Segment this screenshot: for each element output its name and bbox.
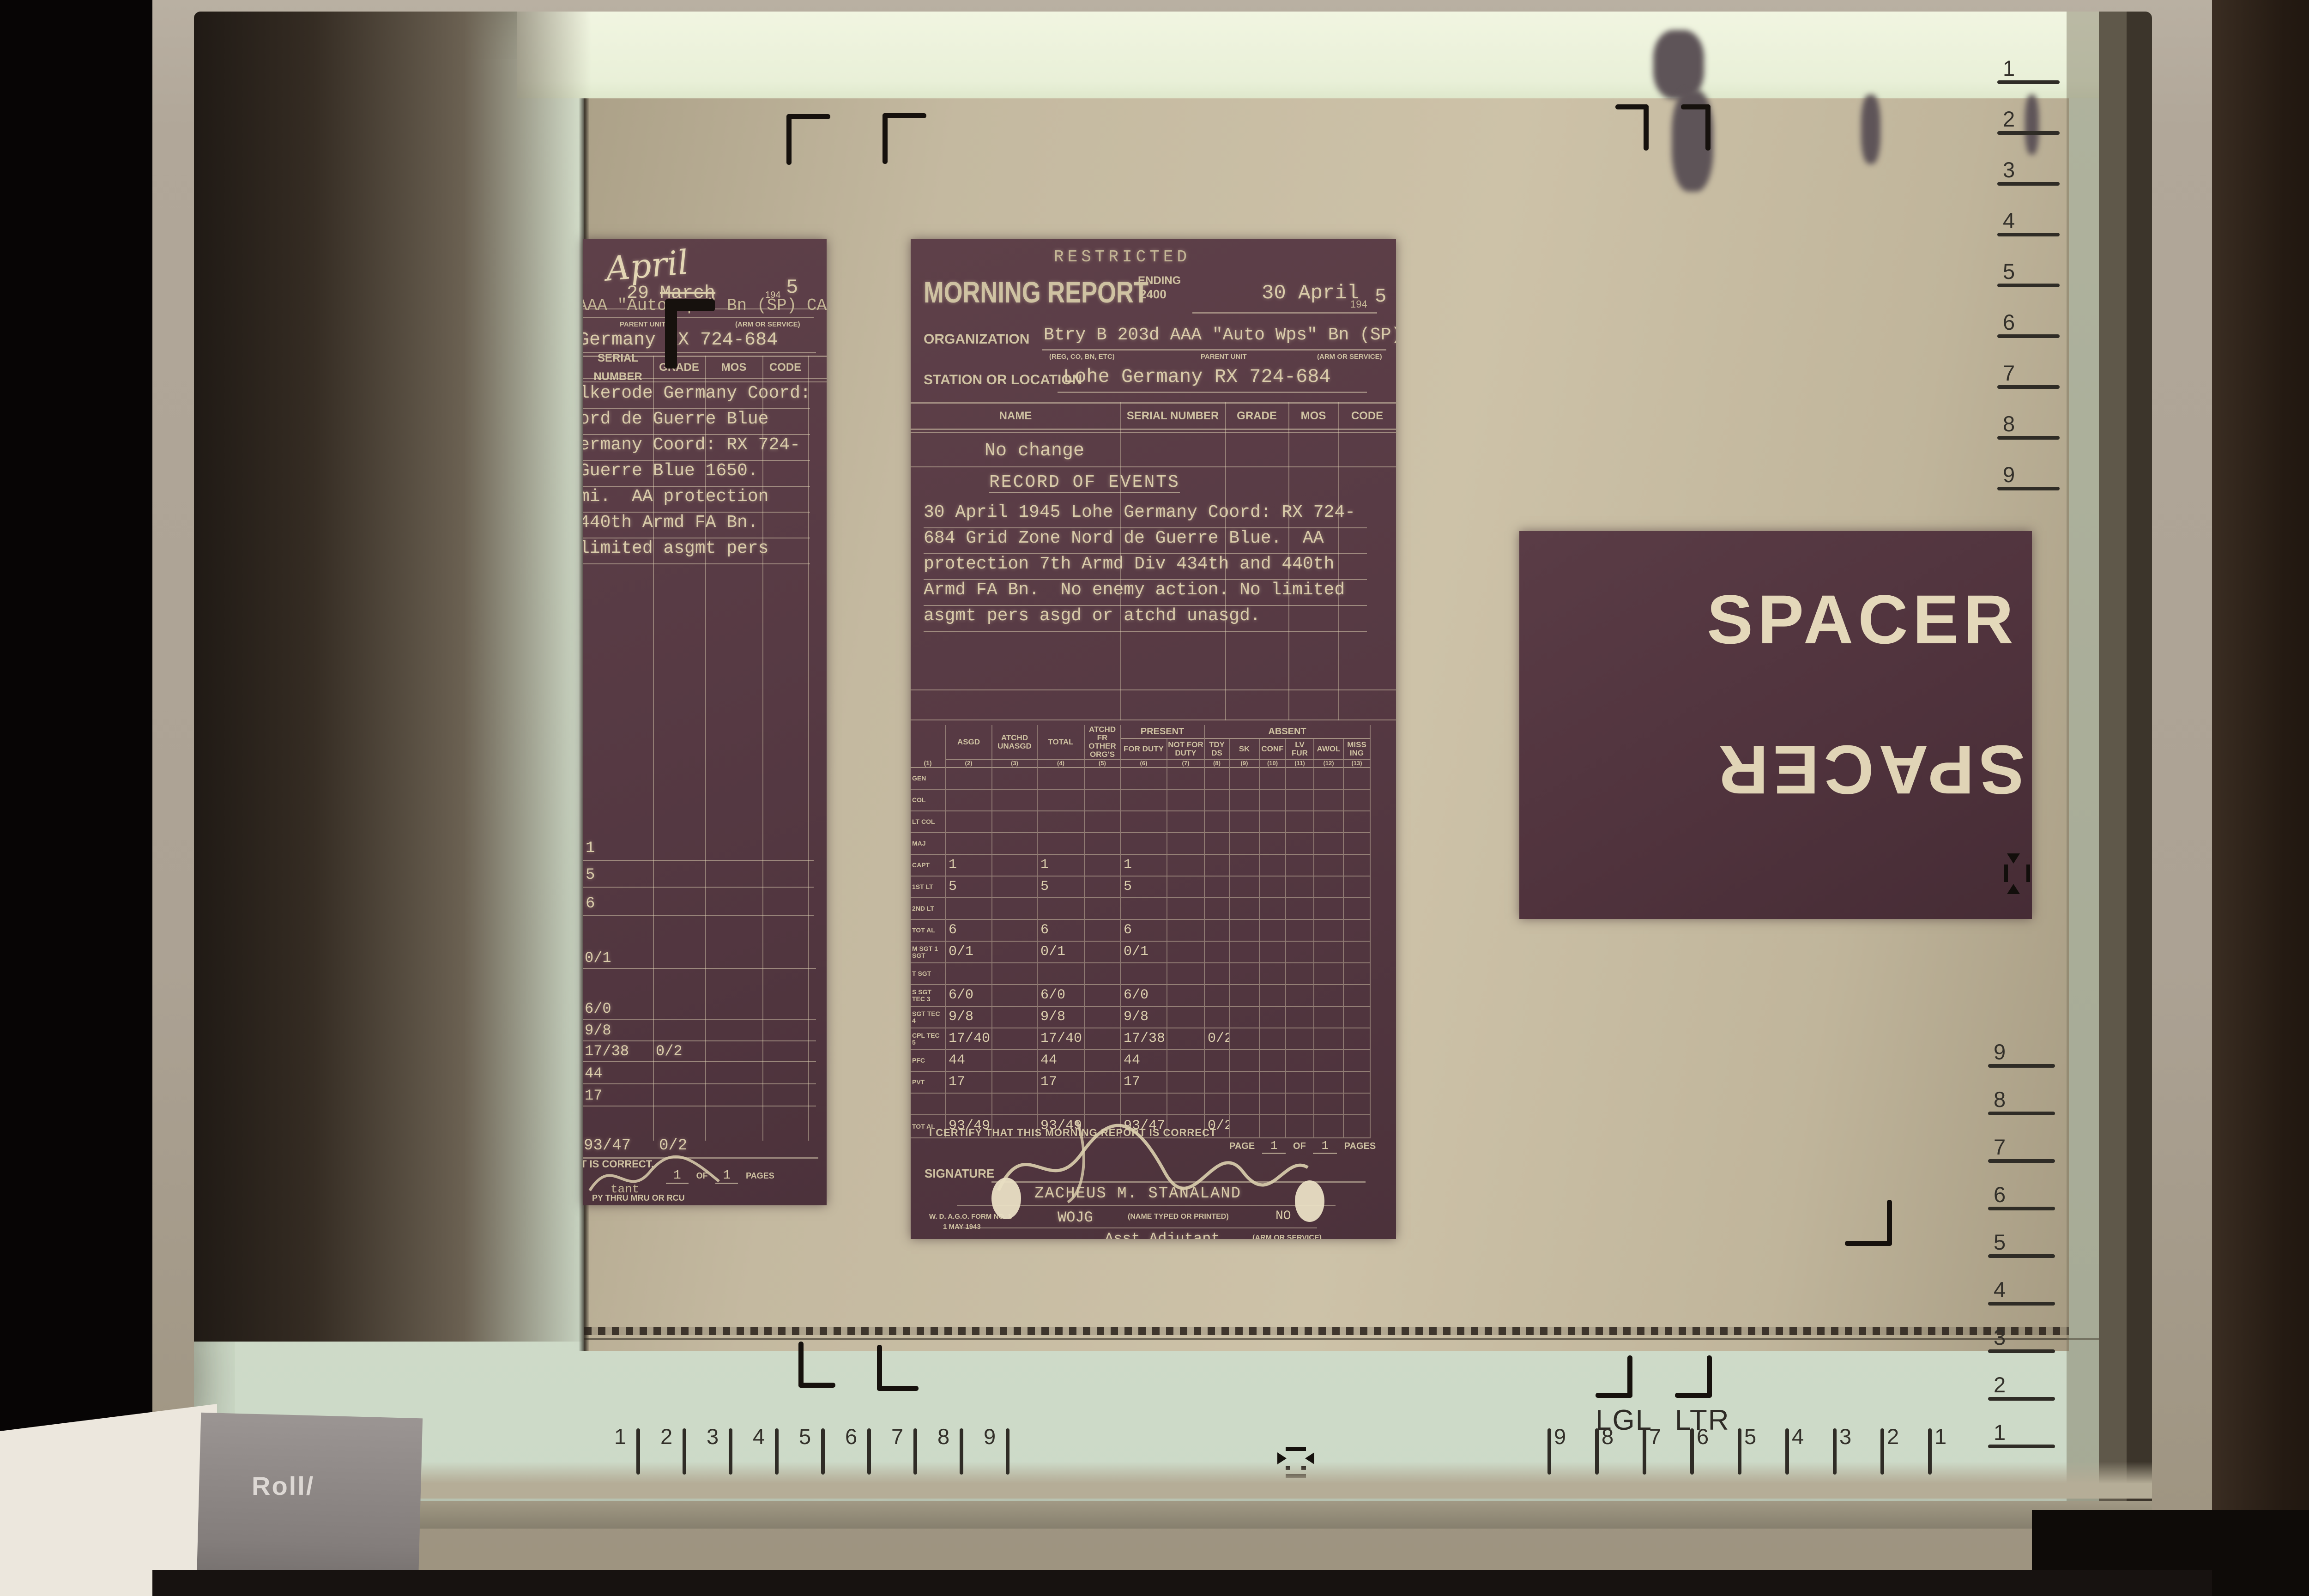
strength-cell <box>1230 1072 1260 1094</box>
ruler-number: 7 <box>891 1424 903 1449</box>
roster-header: NAME <box>911 405 1120 427</box>
ruler-number: 4 <box>753 1424 765 1449</box>
strength-cell <box>1314 985 1344 1007</box>
strength-cell <box>1167 898 1205 920</box>
strength-cell <box>1344 1094 1371 1115</box>
strength-cell <box>1085 898 1121 920</box>
strength-cell <box>946 768 992 790</box>
strength-cell <box>1085 768 1121 790</box>
tally-value: 0/1 <box>585 949 611 967</box>
ruler-tick <box>1997 487 2060 490</box>
screen-right-shadow-deep <box>2127 12 2152 1529</box>
machine-left-panel <box>0 0 152 1596</box>
strength-cell <box>1121 833 1167 855</box>
ruler-number: 5 <box>1744 1424 1756 1449</box>
strength-cell: LT COL <box>911 811 946 833</box>
strength-cell <box>1038 790 1085 811</box>
strength-cell <box>1205 833 1230 855</box>
strength-cell <box>1230 920 1260 942</box>
ruler-number: 8 <box>937 1424 949 1449</box>
year-digit: 5 <box>1375 285 1386 308</box>
ruler-tick <box>1988 1159 2055 1163</box>
strength-cell: 6 <box>1038 920 1085 942</box>
strength-cell: 93/47 <box>1121 1115 1167 1138</box>
events-line: 684 Grid Zone Nord de Guerre Blue. AA <box>924 528 1367 554</box>
strength-cell: 17 <box>946 1072 992 1094</box>
strength-cell <box>1167 790 1205 811</box>
strength-cell: PRESENT <box>1121 725 1205 739</box>
strength-cell <box>992 811 1038 833</box>
ruler-number: 3 <box>707 1424 719 1449</box>
strength-cell: 17 <box>1121 1072 1167 1094</box>
strength-cell <box>992 855 1038 877</box>
ruler-number: 3 <box>1994 1324 2006 1350</box>
ruler-tick <box>729 1428 732 1475</box>
strength-cell <box>1205 898 1230 920</box>
strength-cell <box>992 1094 1038 1115</box>
tally-rule <box>583 1083 816 1084</box>
strength-cell <box>1167 877 1205 898</box>
strength-cell <box>1286 942 1314 963</box>
strength-cell: (3) <box>992 760 1038 768</box>
strength-cell <box>1205 985 1230 1007</box>
strength-cell: CONF <box>1260 739 1286 760</box>
tally-value: 6/0 <box>585 1000 611 1017</box>
ruler-tick <box>1988 1302 2055 1306</box>
roster-header: GRADE <box>1225 405 1288 427</box>
signed-name: ZACHEUS M. STANALAND <box>1034 1185 1241 1203</box>
events-line: 30 April 1945 Lohe Germany Coord: RX 724… <box>924 502 1367 528</box>
ruler-tick <box>1738 1428 1741 1475</box>
ruler-right-bottom: 987654321 <box>1988 1039 2067 1478</box>
strength-cell <box>1344 942 1371 963</box>
strength-cell <box>1038 898 1085 920</box>
roll-panel <box>196 1413 423 1596</box>
strength-cell: (13) <box>1344 760 1371 768</box>
strength-cell: (8) <box>1205 760 1230 768</box>
tally-value: 9/8 <box>585 1022 611 1039</box>
grade-value: WOJG <box>1058 1209 1093 1226</box>
strength-cell: 1 <box>946 855 992 877</box>
ruler-number: 3 <box>1839 1424 1851 1449</box>
strength-cell <box>1344 898 1371 920</box>
strength-cell <box>1260 790 1286 811</box>
strength-cell <box>1286 1050 1314 1072</box>
strength-cell: (10) <box>1260 760 1286 768</box>
film-smudge <box>1653 30 1704 99</box>
strength-cell <box>1230 855 1260 877</box>
ruler-tick <box>1988 1397 2055 1401</box>
strength-cell <box>1344 1028 1371 1050</box>
strength-cell <box>1286 1115 1314 1138</box>
strength-cell <box>1286 985 1314 1007</box>
strength-cell: COL <box>911 790 946 811</box>
tally-value: 17 <box>585 1087 602 1104</box>
strength-cell <box>1038 833 1085 855</box>
ruler-number: 2 <box>2003 106 2015 132</box>
strength-cell <box>1314 1072 1344 1094</box>
strength-cell <box>1314 1115 1344 1138</box>
ruler-number: 2 <box>1994 1372 2006 1397</box>
ruler-tick <box>1690 1428 1694 1475</box>
classification-banner: RESTRICTED <box>1054 248 1191 266</box>
strength-cell <box>1260 1050 1286 1072</box>
strength-cell <box>992 898 1038 920</box>
punch-hole <box>1295 1180 1324 1222</box>
tally-rule <box>583 968 816 969</box>
ruler-number: 4 <box>1994 1277 2006 1302</box>
strength-cell <box>992 1072 1038 1094</box>
strength-cell <box>1286 811 1314 833</box>
ruler-tick <box>1833 1428 1837 1475</box>
strength-cell <box>1286 1028 1314 1050</box>
no-change-entry: No change <box>985 441 1084 461</box>
tally-value: 17/38 <box>585 1043 629 1060</box>
screen-bottom-lip-shadow <box>194 1501 2152 1529</box>
strength-cell <box>1260 1115 1286 1138</box>
strength-cell: 5 <box>946 877 992 898</box>
roll-label: Roll/ <box>252 1471 314 1501</box>
ruler-tick <box>1643 1428 1646 1475</box>
ruler-tick <box>1997 385 2060 389</box>
strength-cell <box>1167 963 1205 985</box>
strength-cell <box>1230 963 1260 985</box>
ruler-number: 6 <box>1994 1182 2006 1207</box>
strength-cell: (12) <box>1314 760 1344 768</box>
strength-cell <box>1344 768 1371 790</box>
strength-cell: M SGT 1 SGT <box>911 942 946 963</box>
strength-cell <box>1167 855 1205 877</box>
strength-cell: (5) <box>1085 760 1121 768</box>
microfilm-screen: April 29 March 194 5 AAA "Auto Wps" Bn (… <box>194 12 2152 1529</box>
tally-value: 6 <box>586 895 595 913</box>
film-bottom-edge <box>584 1327 2069 1335</box>
spacer-label-inverted: SPACER <box>1714 730 2025 810</box>
ruler-tick <box>1997 334 2060 338</box>
ruler-number: 1 <box>2003 55 2015 81</box>
strength-cell <box>1286 1094 1314 1115</box>
strength-cell <box>1085 1050 1121 1072</box>
strength-cell <box>992 1115 1038 1138</box>
ruler-number: 5 <box>799 1424 811 1449</box>
strength-cell: SK <box>1230 739 1260 760</box>
stage: April 29 March 194 5 AAA "Auto Wps" Bn (… <box>0 0 2309 1596</box>
strength-cell <box>946 898 992 920</box>
ruler-tick <box>960 1428 963 1475</box>
signature-label: SIGNATURE <box>925 1167 994 1181</box>
ruler-bottom-right: 987654321 <box>1554 1424 1997 1498</box>
strength-cell <box>992 1028 1038 1050</box>
ruler-number: 8 <box>1602 1424 1614 1449</box>
strength-cell: SGT TEC 4 <box>911 1007 946 1028</box>
strength-cell: 17/40 <box>1038 1028 1085 1050</box>
station-label: STATION OR LOCATION <box>924 372 1082 388</box>
strength-cell <box>1205 920 1230 942</box>
strength-cell: (9) <box>1230 760 1260 768</box>
ruler-right-top: 123456789 <box>1997 55 2071 522</box>
strength-cell: 5 <box>1038 877 1085 898</box>
strength-cell <box>1230 1007 1260 1028</box>
strength-cell: NOT FOR DUTY <box>1167 739 1205 760</box>
strength-cell <box>1230 1050 1260 1072</box>
strength-cell <box>1085 877 1121 898</box>
tally-rule <box>583 1106 816 1106</box>
strength-cell: ASGD <box>946 725 992 760</box>
film-right-margin <box>2067 12 2099 1529</box>
strength-cell <box>946 790 992 811</box>
tally-rule <box>583 887 814 888</box>
left-report-tally: 1560/16/09/817/380/2441793/470/2 <box>583 239 827 1205</box>
strength-cell <box>1205 877 1230 898</box>
strength-cell <box>1344 833 1371 855</box>
ruler-tick <box>1997 233 2060 236</box>
strength-cell: ATCHD FR OTHER ORG'S <box>1085 725 1121 760</box>
strength-cell <box>1167 920 1205 942</box>
ruler-tick <box>1997 131 2060 135</box>
ruler-bottom-left: 123456789 <box>614 1424 1058 1498</box>
strength-cell: (7) <box>1167 760 1205 768</box>
pages-label: PAGES <box>1344 1141 1376 1151</box>
strength-cell <box>1167 942 1205 963</box>
strength-cell: 93/49 <box>946 1115 992 1138</box>
strength-cell <box>992 920 1038 942</box>
strength-cell <box>1344 1007 1371 1028</box>
strength-cell <box>1314 898 1344 920</box>
strength-cell <box>1344 790 1371 811</box>
strength-cell <box>1286 877 1314 898</box>
strength-cell <box>1121 790 1167 811</box>
strength-cell: TOT AL <box>911 920 946 942</box>
strength-cell <box>1230 1115 1260 1138</box>
strength-cell <box>1314 811 1344 833</box>
strength-cell: (6) <box>1121 760 1167 768</box>
strength-cell <box>1260 811 1286 833</box>
ruler-tick <box>1988 1112 2055 1115</box>
strength-cell <box>1314 768 1344 790</box>
strength-cell <box>1121 768 1167 790</box>
strength-cell <box>1205 768 1230 790</box>
film-smudge <box>1861 95 1880 164</box>
strength-cell <box>1314 1028 1344 1050</box>
strength-cell: MISS ING <box>1344 739 1371 760</box>
ruler-number: 6 <box>2003 309 2015 335</box>
strength-cell <box>946 811 992 833</box>
strength-cell: 0/1 <box>1038 942 1085 963</box>
strength-cell: 0/1 <box>946 942 992 963</box>
strength-cell: TOT AL <box>911 1115 946 1138</box>
strength-cell <box>1344 877 1371 898</box>
strength-cell <box>1121 1094 1167 1115</box>
strength-cell: 17 <box>1038 1072 1085 1094</box>
ruler-tick <box>636 1428 640 1475</box>
ruler-tick <box>1880 1428 1884 1475</box>
strength-cell <box>1314 1094 1344 1115</box>
org-sublabel-2: PARENT UNIT <box>1201 353 1247 361</box>
strength-cell <box>1260 985 1286 1007</box>
strength-cell <box>1167 1050 1205 1072</box>
tally-rule <box>583 860 814 861</box>
strength-cell <box>1085 833 1121 855</box>
ruler-tick <box>1785 1428 1789 1475</box>
ruler-number: 8 <box>2003 411 2015 436</box>
strength-cell: 0/1 <box>1121 942 1167 963</box>
strength-cell <box>1038 811 1085 833</box>
strength-cell: FOR DUTY <box>1121 739 1167 760</box>
strength-cell: CPL TEC 5 <box>911 1028 946 1050</box>
ruler-tick <box>1988 1445 2055 1448</box>
ruler-tick <box>683 1428 686 1475</box>
tally-value: 0/2 <box>656 1043 683 1060</box>
strength-cell <box>1230 811 1260 833</box>
strength-cell <box>1314 855 1344 877</box>
ruler-tick <box>1997 436 2060 440</box>
strength-cell: 0/2 <box>1205 1028 1230 1050</box>
strength-cell: 44 <box>946 1050 992 1072</box>
screen-left-shadow <box>194 12 591 1342</box>
left-report-pages-label: PAGES <box>746 1171 774 1180</box>
ending-value: 2400 <box>1140 287 1167 302</box>
strength-cell: ABSENT <box>1205 725 1371 739</box>
strength-cell <box>1085 855 1121 877</box>
report-title: MORNING REPORT <box>924 275 1148 309</box>
strength-cell: PFC <box>911 1050 946 1072</box>
machine-base-panel <box>0 1404 217 1596</box>
strength-cell <box>1260 963 1286 985</box>
strength-cell <box>1286 1007 1314 1028</box>
strength-cell: ATCHD UNASGD <box>992 725 1038 760</box>
strength-cell <box>1167 1007 1205 1028</box>
strength-cell <box>1314 833 1344 855</box>
service-sublabel: (ARM OR SERVICE) <box>1252 1234 1322 1239</box>
ruler-number: 6 <box>845 1424 857 1449</box>
ruler-number: 9 <box>1994 1039 2006 1064</box>
tally-value: 44 <box>585 1065 602 1082</box>
year-prefix: 194 <box>1350 298 1367 310</box>
ruler-tick <box>913 1428 917 1475</box>
strength-cell <box>1314 920 1344 942</box>
ruler-tick <box>1997 182 2060 186</box>
strength-cell <box>1167 1115 1205 1138</box>
strength-cell: 6 <box>946 920 992 942</box>
strength-cell <box>1205 1072 1230 1094</box>
strength-cell <box>1205 963 1230 985</box>
strength-cell <box>1205 811 1230 833</box>
ruler-tick <box>1006 1428 1009 1475</box>
ruler-number: 7 <box>1994 1134 2006 1160</box>
strength-cell <box>1167 1072 1205 1094</box>
strength-cell <box>1167 833 1205 855</box>
events-line: protection 7th Armd Div 434th and 440th <box>924 554 1367 580</box>
ruler-number: 4 <box>1792 1424 1804 1449</box>
ruler-tick <box>867 1428 871 1475</box>
strength-cell <box>1085 811 1121 833</box>
strength-cell <box>1314 1050 1344 1072</box>
ruler-number: 1 <box>1934 1424 1946 1449</box>
strength-cell: 0/2 <box>1205 1115 1230 1138</box>
strength-cell: TOTAL <box>1038 725 1085 760</box>
strength-cell: 6/0 <box>1121 985 1167 1007</box>
strength-cell: (11) <box>1286 760 1314 768</box>
strength-cell: MAJ <box>911 833 946 855</box>
roster-header: MOS <box>1288 405 1338 427</box>
strength-cell: 1ST LT <box>911 877 946 898</box>
ruler-tick <box>1928 1428 1932 1475</box>
ruler-number: 4 <box>2003 208 2015 233</box>
report-date: 30 April <box>1262 282 1359 305</box>
station-value: Lohe Germany RX 724-684 <box>1063 366 1331 388</box>
machine-right-shadow <box>2212 0 2309 1596</box>
strength-cell <box>1344 1050 1371 1072</box>
strength-cell <box>1085 963 1121 985</box>
ruler-number: 3 <box>2003 157 2015 182</box>
tally-rule <box>583 1061 816 1062</box>
strength-cell <box>1167 768 1205 790</box>
strength-cell: 6/0 <box>1038 985 1085 1007</box>
ruler-number: 1 <box>614 1424 626 1449</box>
strength-cell <box>1121 963 1167 985</box>
strength-cell: CAPT <box>911 855 946 877</box>
strength-cell <box>992 877 1038 898</box>
strength-cell <box>1260 920 1286 942</box>
strength-cell <box>1260 1028 1286 1050</box>
ruler-tick <box>1997 80 2060 84</box>
strength-cell: 2ND LT <box>911 898 946 920</box>
film-bottom-line <box>584 1338 2099 1340</box>
ruler-number: 2 <box>1887 1424 1899 1449</box>
events-line: Armd FA Bn. No enemy action. No limited <box>924 580 1367 606</box>
strength-cell <box>1344 855 1371 877</box>
strength-cell <box>1286 768 1314 790</box>
ruler-number: 9 <box>984 1424 996 1449</box>
strength-cell <box>1230 833 1260 855</box>
strength-cell <box>1344 963 1371 985</box>
strength-cell <box>992 1050 1038 1072</box>
strength-cell <box>1085 920 1121 942</box>
strength-cell <box>1314 963 1344 985</box>
signature-scribble <box>585 1144 724 1204</box>
strength-cell: 93/49 <box>1038 1115 1085 1138</box>
ruler-tick <box>1988 1254 2055 1258</box>
strength-cell <box>1167 811 1205 833</box>
title-value: Asst Adjutant <box>1105 1230 1220 1239</box>
strength-cell <box>1205 1007 1230 1028</box>
strength-cell <box>1230 790 1260 811</box>
strength-cell <box>1085 1115 1121 1138</box>
ruler-tick <box>1595 1428 1599 1475</box>
strength-cell: 6/0 <box>946 985 992 1007</box>
strength-cell: 9/8 <box>1121 1007 1167 1028</box>
strength-cell <box>1314 790 1344 811</box>
ending-label: ENDING <box>1138 274 1181 287</box>
roster-header: SERIAL NUMBER <box>1120 405 1225 427</box>
strength-cell <box>1205 1094 1230 1115</box>
strength-cell: (2) <box>946 760 992 768</box>
strength-cell: S SGT TEC 3 <box>911 985 946 1007</box>
ruler-tick <box>775 1428 779 1475</box>
strength-cell <box>1121 811 1167 833</box>
record-of-events-label: RECORD OF EVENTS <box>989 472 1180 493</box>
ruler-tick <box>1988 1064 2055 1068</box>
ruler-number: 5 <box>1994 1229 2006 1255</box>
strength-cell <box>1167 1094 1205 1115</box>
strength-cell <box>1286 790 1314 811</box>
report-frame-left: April 29 March 194 5 AAA "Auto Wps" Bn (… <box>583 239 827 1205</box>
strength-cell: AWOL <box>1314 739 1344 760</box>
strength-cell <box>1230 1028 1260 1050</box>
organization-label: ORGANIZATION <box>924 332 1029 347</box>
strength-cell: (1) <box>911 725 946 768</box>
form-date: 1 MAY 1943 <box>943 1223 981 1231</box>
